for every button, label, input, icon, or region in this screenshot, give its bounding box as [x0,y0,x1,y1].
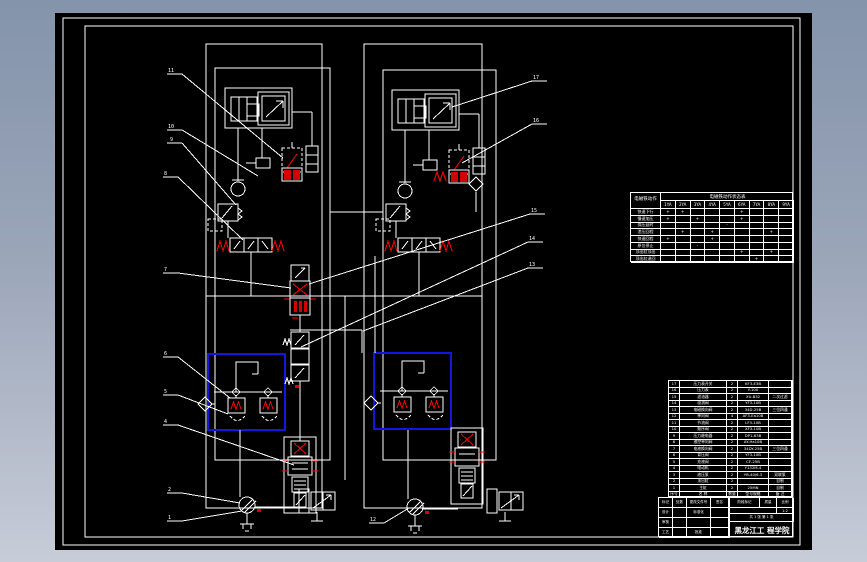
table-cell: + [676,229,691,236]
table-cell [720,216,735,223]
table-cell [735,243,750,250]
table-cell [661,250,676,257]
table-cell [673,508,687,518]
table-cell [711,518,729,528]
table-cell: 快速下行 [631,209,661,216]
table-cell [750,236,765,243]
action-table-header: 1YA2YA3YA4YA5YA6YA7YA8YA9YA [661,201,794,209]
table-cell [720,236,735,243]
table-cell [661,223,676,230]
table-cell [673,528,687,538]
table-cell [779,256,794,263]
table-cell: + [661,236,676,243]
table-cell [764,243,779,250]
table-cell [691,250,706,257]
table-cell [750,229,765,236]
right-circuit [364,90,523,533]
callout-text: 1 [168,515,171,521]
table-cell: 保压延时 [631,223,661,230]
table-cell [705,216,720,223]
table-cell [691,229,706,236]
scale-label: 比例 [777,498,794,508]
sheet-count: 共 1 张 第 1 张 [730,514,794,522]
table-cell [720,229,735,236]
table-cell [764,223,779,230]
organization-name: 黑龙江工 程学院 [730,522,794,538]
table-cell: 8YA [764,201,779,209]
mass-label: 质量 [760,498,777,508]
table-cell: + [705,229,720,236]
table-cell [691,223,706,230]
table-cell: 慢速加压 [631,216,661,223]
table-cell [720,250,735,257]
table-cell [750,209,765,216]
table-cell: 处数 [673,498,687,508]
table-cell [779,236,794,243]
table-cell [676,216,691,223]
table-cell [661,229,676,236]
table-cell [676,250,691,257]
table-cell: 7YA [750,201,765,209]
action-table-corner: 电磁铁动作 [631,193,661,209]
table-cell [705,223,720,230]
table-cell [711,528,729,538]
table-cell [673,518,687,528]
table-cell [720,209,735,216]
table-cell [720,243,735,250]
table-cell [720,256,735,263]
callout-text: 10 [168,124,174,130]
table-cell [705,209,720,216]
table-cell [676,236,691,243]
callout-text: 17 [533,75,539,81]
table-cell: 更改文件号 [687,498,711,508]
callout-text: 8 [164,171,167,177]
table-cell [779,216,794,223]
table-cell: 顶出缸退回 [631,256,661,263]
table-cell [661,243,676,250]
table-cell [779,223,794,230]
table-cell: 3YA [691,201,706,209]
table-cell [705,243,720,250]
table-cell: + [705,236,720,243]
callout-text: 15 [531,208,537,214]
table-cell [764,209,779,216]
callout-text: 7 [164,267,167,273]
table-cell [779,250,794,257]
action-table-body: 快速下行+++慢速加压+++保压延时-泄压回程+++快速回程++原位停止-顶出缸… [631,209,794,263]
table-cell [705,250,720,257]
table-cell: 原位停止 [631,243,661,250]
table-cell [676,223,691,230]
callout-text: 12 [370,517,376,523]
table-cell [735,229,750,236]
table-cell [750,250,765,257]
connection-lines [206,212,482,509]
table-cell [779,209,794,216]
table-cell [764,236,779,243]
table-cell [750,243,765,250]
stage-label: 阶段标记 [730,498,760,508]
table-cell [735,223,750,230]
table-cell: 9YA [779,201,794,209]
table-cell: + [661,216,676,223]
table-cell: + [735,250,750,257]
table-cell [661,256,676,263]
title-block-info-area: 阶段标记 质量 比例 1:2 共 1 张 第 1 张 黑龙江工 程学院 [729,498,794,538]
table-cell [705,256,720,263]
cad-viewport: 11 10 9 8 7 6 5 4 2 1 17 16 15 [0,0,867,562]
callout-text: 13 [529,262,535,268]
table-cell [687,518,711,528]
table-cell [676,256,691,263]
table-cell: 5YA [720,201,735,209]
table-cell: 顶出缸顶出 [631,250,661,257]
callout-text: 14 [529,236,535,242]
table-cell: 2YA [676,201,691,209]
table-cell [691,209,706,216]
table-cell: 1YA [661,201,676,209]
table-cell [750,216,765,223]
parts-list-table: 17压力表开关2KF3-E3B16压力表2Y-10015滤油器2XU-B32二次… [668,380,793,497]
table-cell: 泄压回程 [631,229,661,236]
table-cell [711,508,729,518]
table-cell: + [735,216,750,223]
table-cell: 标准化 [687,508,711,518]
table-cell: 工艺 [659,528,673,538]
solenoid-action-table: 电磁铁动作 电磁铁动作状态表 1YA2YA3YA4YA5YA6YA7YA8YA9… [630,192,793,262]
title-block-revision-area: 标记处数更改文件号签名设计标准化审核工艺批准 [659,498,729,538]
left-circuit [198,88,335,531]
table-cell [735,256,750,263]
center-cartridge-stack [283,265,316,441]
table-cell: 标记 [659,498,673,508]
table-cell: + [735,209,750,216]
table-cell [764,216,779,223]
table-cell: 签名 [711,498,729,508]
table-cell [691,236,706,243]
table-cell [691,256,706,263]
table-cell: 快速回程 [631,236,661,243]
table-cell: 6YA [735,201,750,209]
callout-text: 4 [164,419,167,425]
table-cell: - [720,223,735,230]
callout-text: 11 [168,68,174,74]
table-cell [779,243,794,250]
table-cell: 4YA [705,201,720,209]
table-cell: + [764,250,779,257]
callout-text: 16 [533,118,539,124]
table-cell: 审核 [659,518,673,528]
table-cell: + [764,229,779,236]
table-cell: 设计 [659,508,673,518]
table-cell: 批准 [687,528,711,538]
table-cell: + [691,216,706,223]
table-cell [676,243,691,250]
table-cell: + [661,209,676,216]
action-table-title: 电磁铁动作状态表 [661,193,794,201]
table-cell: - [691,243,706,250]
table-cell [779,229,794,236]
callout-text: 6 [164,351,167,357]
table-cell [750,223,765,230]
callout-text: 9 [170,137,173,143]
callout-text: 2 [168,487,171,493]
table-cell: + [750,256,765,263]
table-cell [735,236,750,243]
table-cell: + [676,209,691,216]
title-block: 标记处数更改文件号签名设计标准化审核工艺批准 阶段标记 质量 比例 1:2 共 … [658,497,793,537]
table-cell [764,256,779,263]
callout-text: 5 [164,389,167,395]
